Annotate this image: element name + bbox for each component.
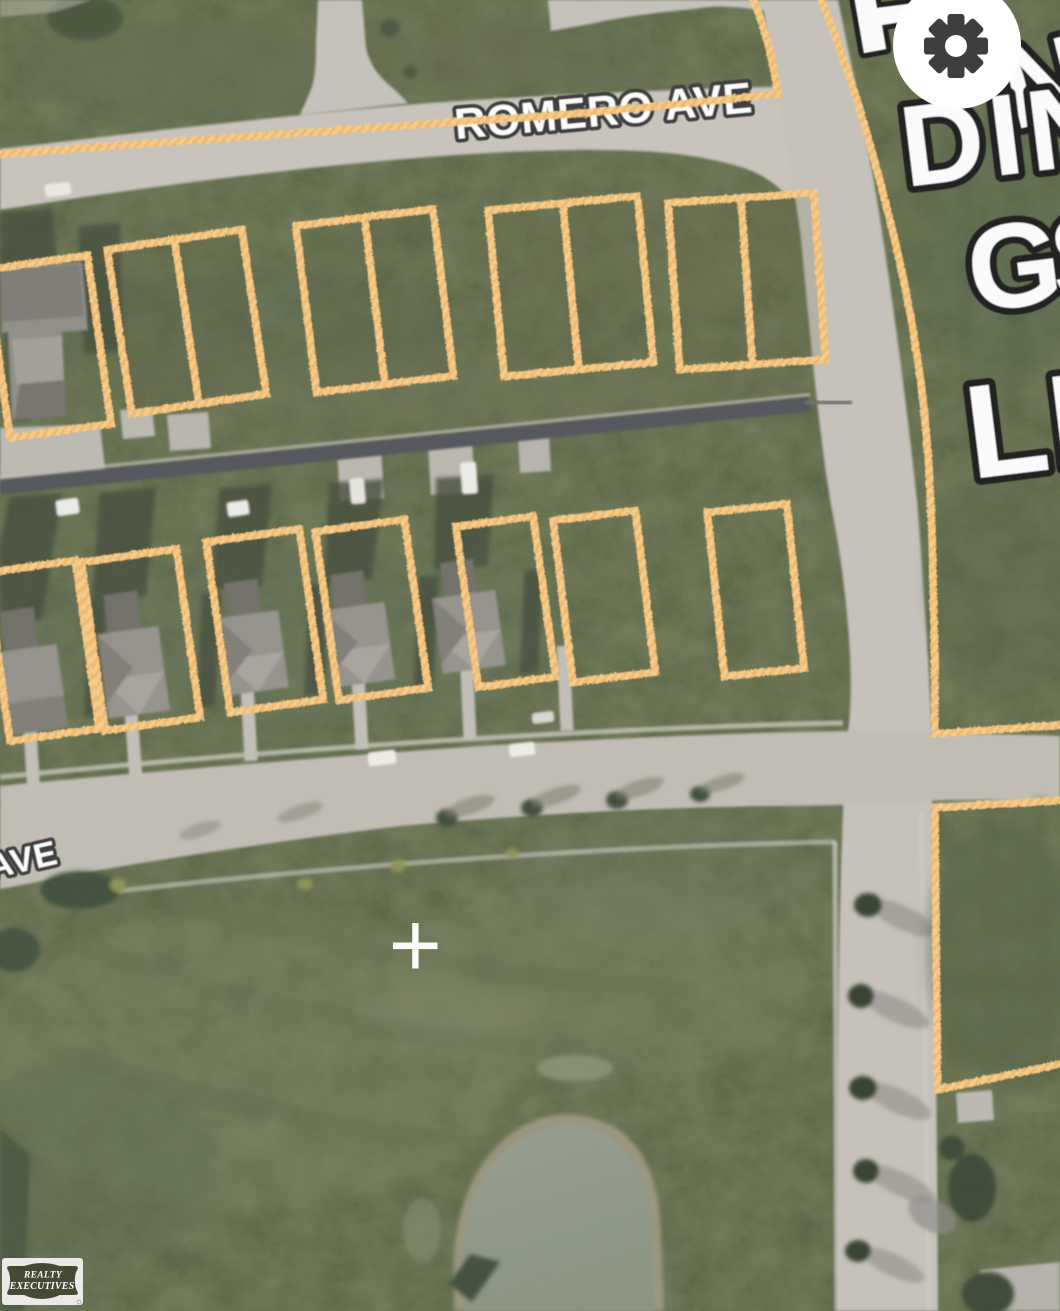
svg-text:REALTY: REALTY bbox=[23, 1271, 63, 1281]
svg-text:EXECUTIVES: EXECUTIVES bbox=[9, 1281, 75, 1292]
